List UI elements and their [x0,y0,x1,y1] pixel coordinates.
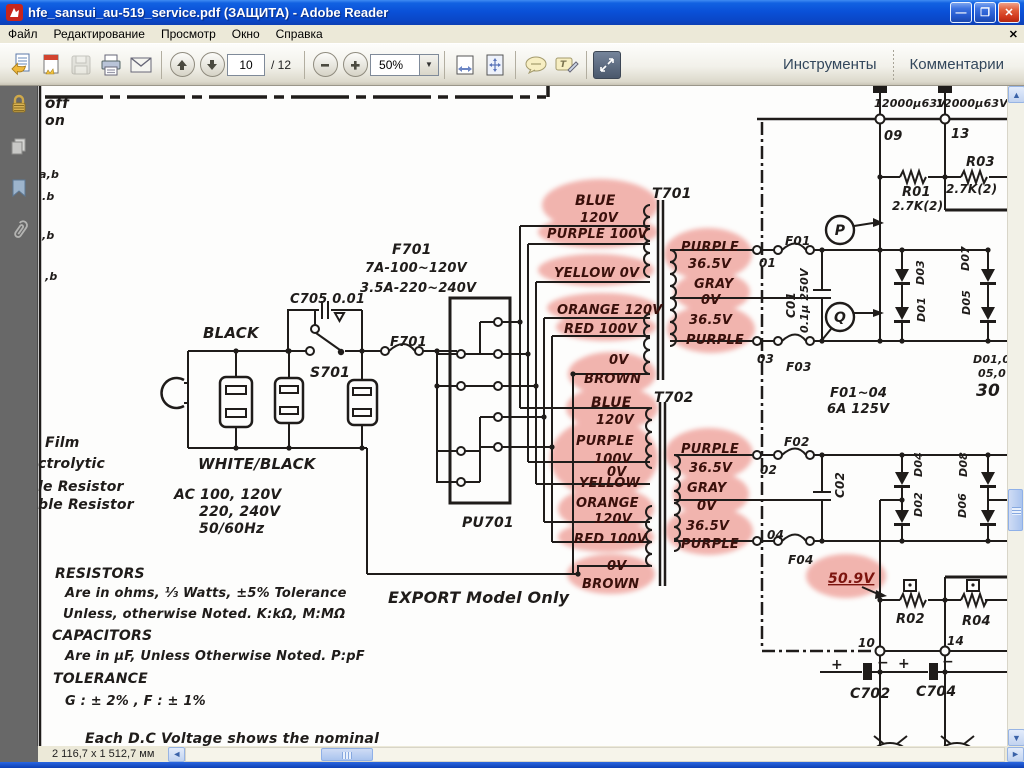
schematic-label: D01 [915,297,928,322]
menu-редактирование[interactable]: Редактирование [46,26,153,42]
schematic-label: D04 [912,452,925,477]
schematic-label: Q [834,310,846,326]
close-button[interactable]: ✕ [998,2,1020,23]
save-icon [69,53,93,77]
expand-arrows-icon [599,57,615,73]
schematic-label: 3.5A-220~240V [360,281,477,296]
schematic-label: G : ± 2% , F : ± 1% [65,694,206,709]
schematic-label: 0.1μ 250V [798,267,811,333]
schematic-label: 14 [947,634,964,648]
chevron-down-icon[interactable]: ▼ [419,55,438,75]
schematic-label: PU701 [462,515,514,531]
next-page-button[interactable] [197,49,227,81]
plus-icon [349,59,361,71]
open-file-button[interactable] [6,49,36,81]
schematic-label: F01~04 [830,386,887,401]
schematic-label: 120V [580,211,619,226]
previous-page-button[interactable] [167,49,197,81]
zoom-value: 50% [371,55,419,75]
schematic-label: F701 [392,242,432,258]
save-button[interactable] [66,49,96,81]
scroll-left-icon[interactable]: ◄ [168,747,185,762]
schematic-label: − [942,654,954,670]
schematic-label: BLUE [575,193,616,209]
schematic-label: 10 [858,636,875,650]
horizontal-scroll-thumb[interactable] [321,748,373,761]
schematic-label: PURPLE [681,240,739,255]
minus-icon [319,59,331,71]
arrow-down-icon [206,59,218,71]
schematic-label: F701 [390,335,427,350]
comments-panel-button[interactable]: Комментарии [896,56,1018,73]
create-pdf-icon [38,52,64,78]
zoom-out-button[interactable] [310,49,340,81]
print-button[interactable] [96,49,126,81]
schematic-label: F04 [788,553,814,567]
schematic-label: 6A 125V [827,402,890,417]
schematic-label: R04 [962,614,991,629]
schematic-label: 01 [759,256,776,270]
comment-bubble-icon [522,52,550,78]
schematic-label: R01 [902,185,931,200]
schematic-label: 30 [976,381,1000,401]
schematic-label: T702 [654,390,694,406]
schematic-label: 13 [951,127,970,142]
fit-width-icon [452,52,478,78]
menu-окно[interactable]: Окно [224,26,268,42]
adobe-reader-window: hfe_sansui_au-519_service.pdf (ЗАЩИТА) -… [0,0,1024,768]
schematic-label: 0V [607,559,627,574]
schematic-label: PURPLE [681,537,739,552]
schematic-label: − [877,655,889,671]
schematic-label: PURPLE [576,434,634,449]
schematic-label: T701 [652,186,692,202]
restore-button[interactable]: ❐ [974,2,996,23]
schematic-label: WHITE/BLACK [198,455,317,473]
schematic-label: 7A-100~120V [365,261,468,276]
pdf-app-icon [6,4,23,21]
schematic-label: BROWN [582,577,639,592]
schematic-label: C01 [784,292,798,318]
schematic-label: C705 0.01 [290,292,365,307]
fullscreen-button[interactable] [592,49,622,81]
schematic-label: off [45,94,71,112]
schematic-label: YELLOW [579,476,640,491]
page-number-input[interactable] [227,54,265,76]
page-total-label: / 12 [271,58,291,72]
print-icon [98,52,124,78]
document-canvas[interactable]: offona,b.b,b,bBLACKC705 0.01S701F7017A-1… [38,86,1007,746]
schematic-label: C702 [850,686,890,702]
schematic-label: RESISTORS [55,566,145,582]
zoom-in-button[interactable] [340,49,370,81]
schematic-label: 2.7K(2) [892,199,943,213]
schematic-label: AC 100, 120V [173,487,282,503]
schematic-label: Film [45,435,80,451]
schematic-label: ORANGE [576,496,639,511]
schematic-label: le Resistor [38,479,125,495]
schematic-label: EXPORT Model Only [388,588,570,607]
schematic-label: BLUE [591,395,632,411]
arrow-up-icon [176,59,188,71]
schematic-label: 50/60Hz [199,521,265,537]
fit-page-icon [482,52,508,78]
schematic-label: YELLOW 0V [554,266,640,281]
sidebar-corner [0,746,38,762]
schematic-label: R03 [966,155,995,170]
toolbar: / 12 50% ▼ [0,43,1024,86]
schematic-label: Are in μF, Unless Otherwise Noted. P:pF [64,649,365,664]
schematic-label: 220, 240V [199,504,281,520]
email-button[interactable] [126,49,156,81]
schematic-label: + [831,657,843,673]
schematic-label: PURPLE [681,442,739,457]
schematic-label: D01,0 [973,353,1007,366]
menu-файл[interactable]: Файл [0,26,46,42]
email-icon [128,52,154,78]
horizontal-scrollbar[interactable] [185,747,1005,762]
schematic-label: GRAY [694,277,735,292]
status-bar: 2 116,7 x 1 512,7 мм ◄ ► [38,746,1024,762]
schematic-label: 04 [767,528,784,542]
schematic-label: + [898,656,910,672]
schematic-label: 36.5V [688,257,732,272]
fit-width-button[interactable] [450,49,480,81]
text-callout-icon: T [552,52,580,78]
lock-icon[interactable] [9,94,29,114]
bookmark-icon[interactable] [10,178,28,198]
schematic-label: D05 [960,290,973,315]
schematic-label: a,b [39,168,59,181]
schematic-label: PURPLE [686,333,744,348]
scroll-right-icon[interactable]: ► [1007,747,1024,762]
schematic-label: BROWN [584,372,641,387]
schematic-label: Unless, otherwise Noted. K:kΩ, M:MΩ [63,607,345,622]
menu-справка[interactable]: Справка [268,26,331,42]
schematic-label: 09 [884,129,903,144]
paperclip-icon[interactable] [9,220,29,242]
schematic-label: F02 [784,435,810,449]
zoom-level-select[interactable]: 50% ▼ [370,54,439,76]
schematic-label: D02 [912,492,925,517]
create-pdf-button[interactable] [36,49,66,81]
tools-panel-button[interactable]: Инструменты [769,56,891,73]
schematic-label: D03 [914,260,927,285]
schematic-label: .b [42,190,54,203]
schematic-label: BLACK [203,324,260,342]
schematic-label: 120V [596,413,635,428]
schematic-label: 36.5V [689,461,733,476]
minimize-button[interactable]: — [950,2,972,23]
pages-icon[interactable] [9,136,29,156]
schematic-label: 03 [757,352,774,366]
schematic-label: 50.9V [828,571,875,587]
menubar-close-icon[interactable]: ✕ [1009,28,1018,41]
navigation-sidebar [0,86,38,762]
schematic-label: RED 100V [574,532,648,547]
schematic-label: RED 100V [564,322,638,337]
schematic-label: 36.5V [686,519,730,534]
text-callout-button[interactable]: T [551,49,581,81]
schematic-label: D08 [957,452,970,477]
fit-page-button[interactable] [480,49,510,81]
schematic-label: S701 [310,365,350,381]
scroll-up-icon[interactable]: ▲ [1008,86,1024,103]
schematic-label: PURPLE 100V [547,227,648,242]
schematic-label: C02 [833,472,847,498]
schematic-labels: offona,b.b,b,bBLACKC705 0.01S701F7017A-1… [38,94,1007,746]
schematic-label: F03 [786,360,812,374]
window-title: hfe_sansui_au-519_service.pdf (ЗАЩИТА) -… [28,5,388,20]
schematic-label: R02 [896,612,925,627]
schematic-label: 36.5V [689,313,733,328]
vertical-scrollbar[interactable]: ▲ ▼ [1007,86,1024,746]
schematic-label: P [835,223,846,239]
window-bottom-border [0,762,1024,768]
schematic-page: offona,b.b,b,bBLACKC705 0.01S701F7017A-1… [38,86,1007,746]
schematic-label: ORANGE 120V [557,303,663,318]
schematic-label: ,b [44,270,57,283]
schematic-label: ctrolytic [38,456,106,472]
svg-text:T: T [560,60,567,70]
schematic-label: C704 [916,684,956,700]
schematic-label: 0V [697,499,717,514]
schematic-label: CAPACITORS [52,628,152,644]
menu-просмотр[interactable]: Просмотр [153,26,224,42]
schematic-label: D07 [959,246,972,271]
comment-bubble-button[interactable] [521,49,551,81]
schematic-label: D06 [956,493,969,518]
schematic-label: 120V [594,512,633,527]
schematic-label: 2.7K(2) [946,182,997,196]
vertical-scroll-thumb[interactable] [1008,489,1023,531]
schematic-label: Are in ohms, ⅓ Watts, ±5% Tolerance [64,586,347,601]
open-file-icon [8,52,34,78]
schematic-label: 0V [609,353,629,368]
document-size-label: 2 116,7 x 1 512,7 мм [38,748,168,760]
schematic-label: on [45,113,65,129]
schematic-label: 02 [760,463,777,477]
schematic-label: TOLERANCE [53,671,148,687]
schematic-label: ,b [41,229,54,242]
schematic-label: ble Resistor [38,497,135,513]
schematic-label: 0V [701,293,721,308]
schematic-label: 05,0 [978,367,1006,380]
schematic-label: Each D.C Voltage shows the nominal [85,731,379,746]
menu-bar: ФайлРедактированиеПросмотрОкноСправка✕ [0,25,1024,43]
scroll-down-icon[interactable]: ▼ [1008,729,1024,746]
schematic-label: F01 [785,234,811,248]
schematic-label: GRAY [687,481,728,496]
title-bar[interactable]: hfe_sansui_au-519_service.pdf (ЗАЩИТА) -… [0,0,1024,25]
schematic-label: 12000μ63V [936,97,1007,110]
